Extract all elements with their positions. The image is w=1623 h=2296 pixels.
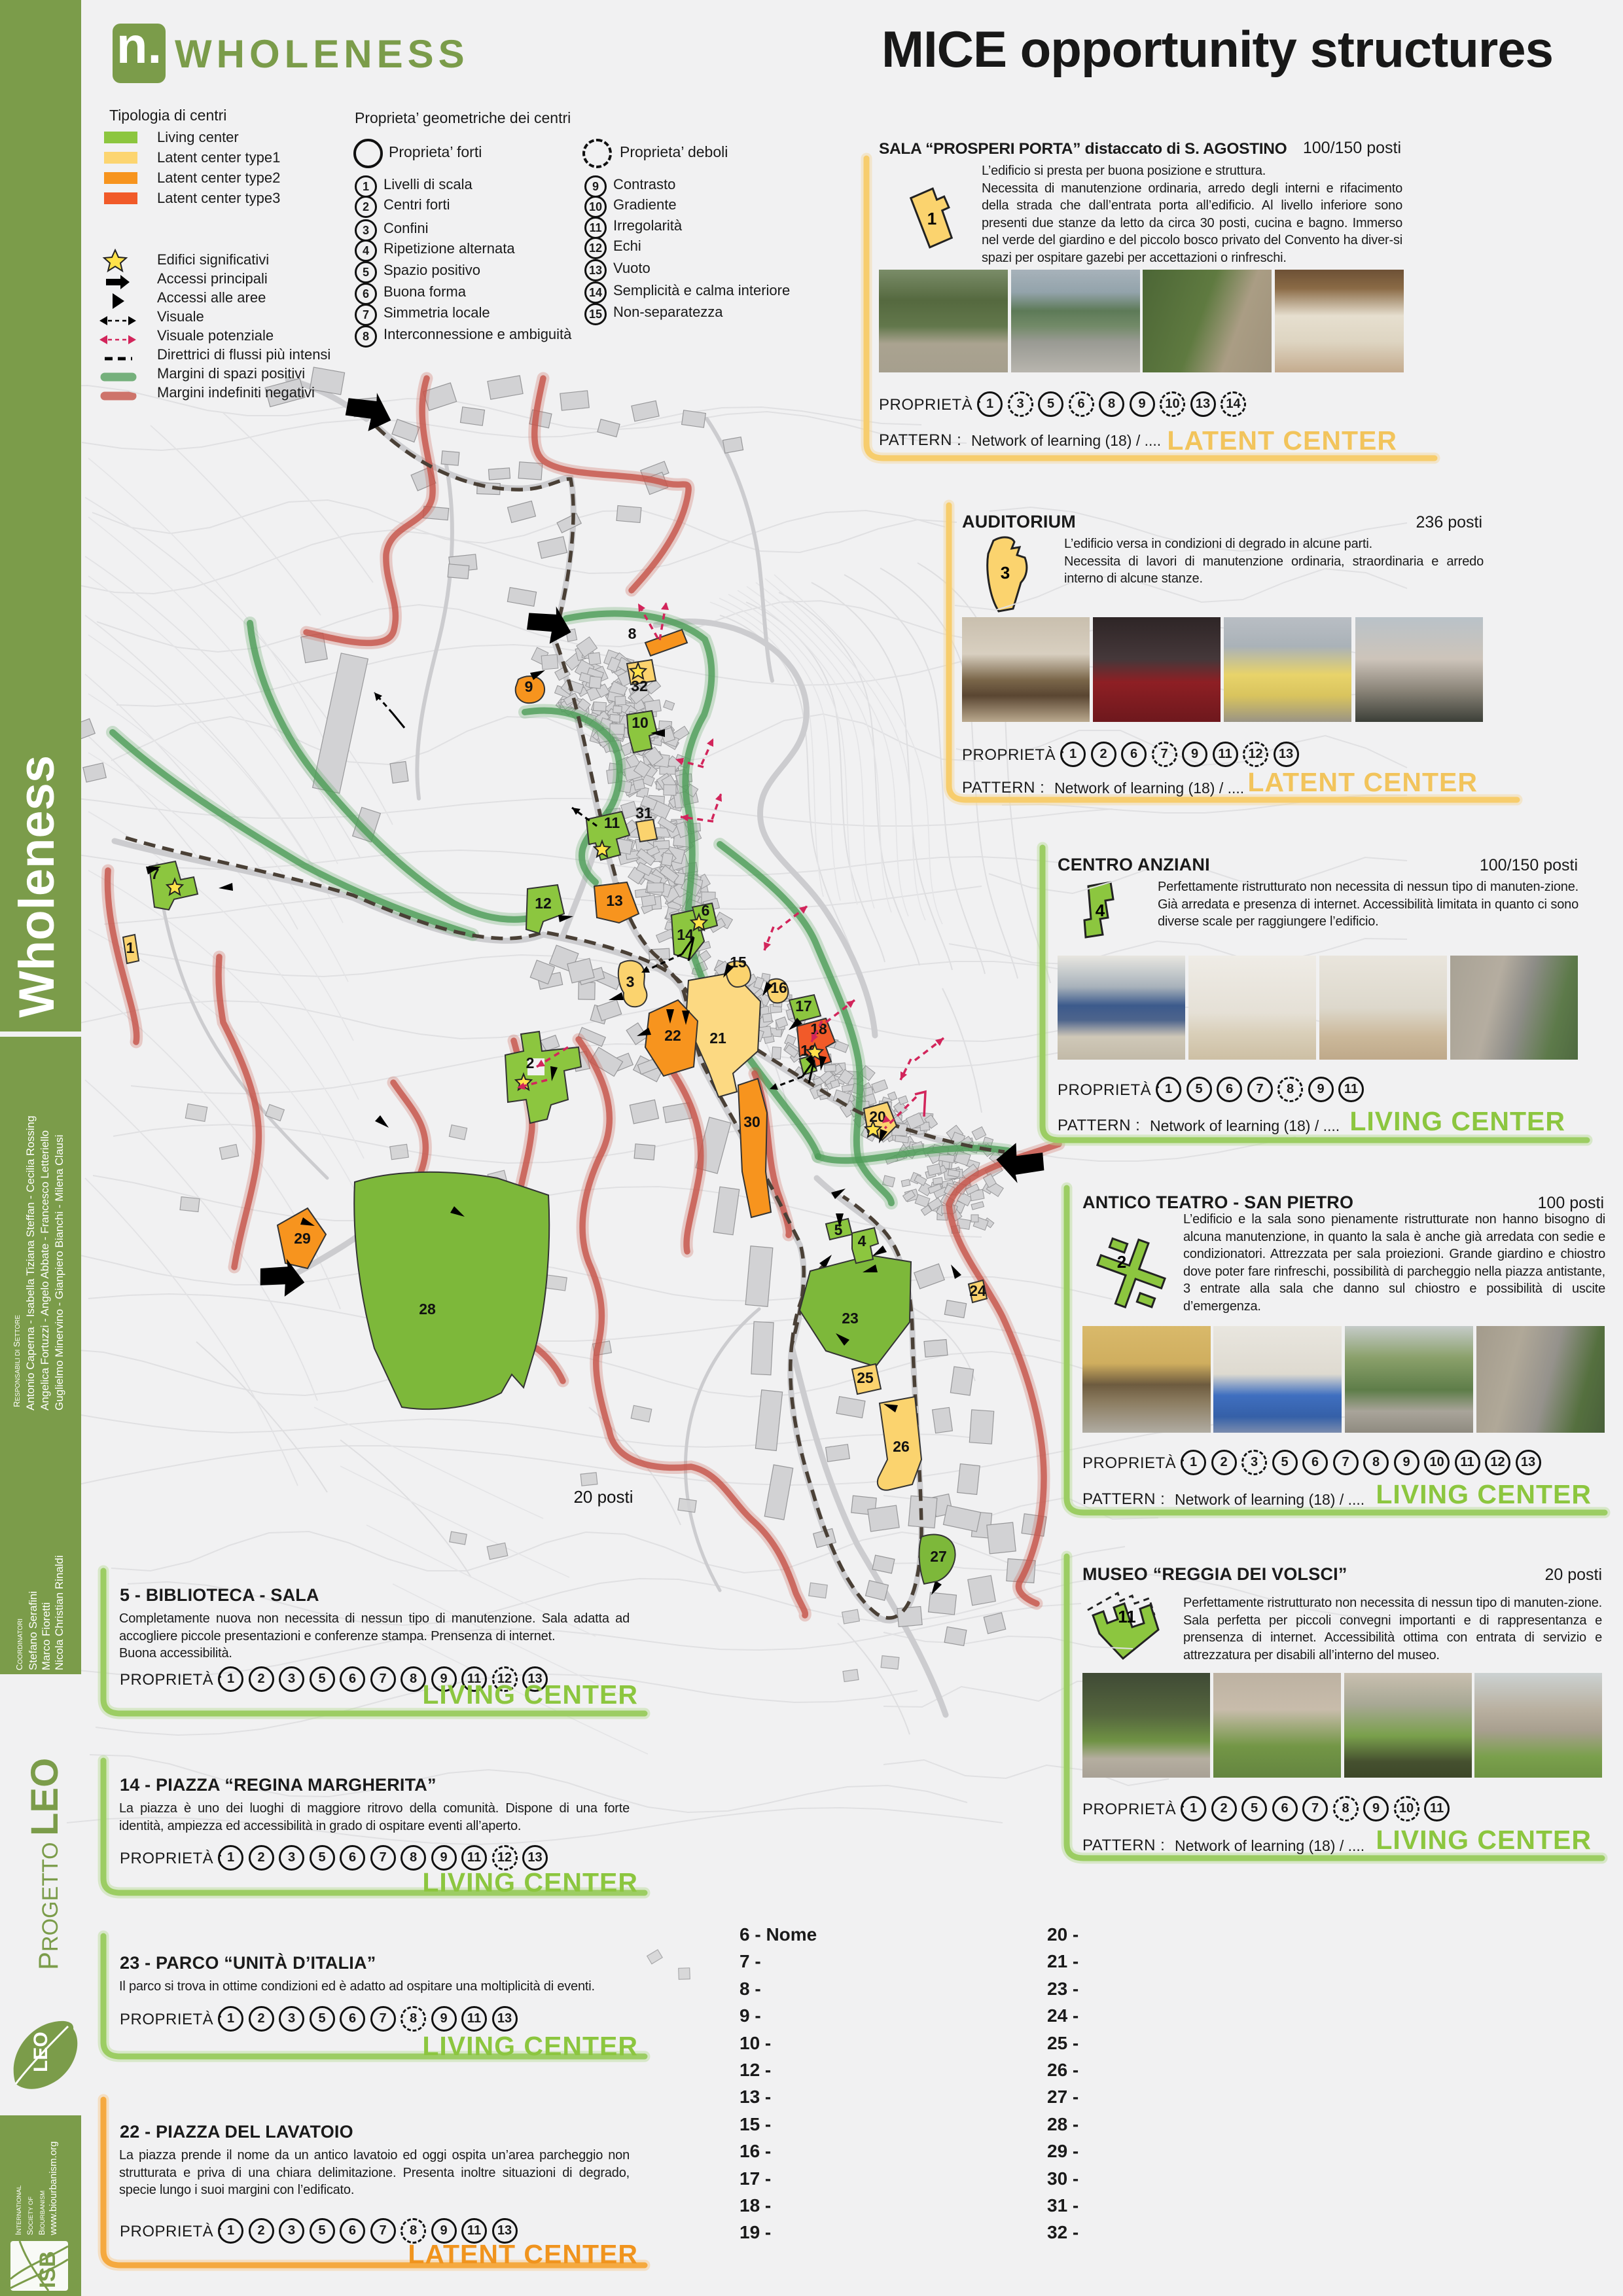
svg-text:Guglielmo Minervino - Gianpier: Guglielmo Minervino - Gianpiero Bianchi … bbox=[53, 1135, 65, 1410]
svg-text:Stefano Serafini: Stefano Serafini bbox=[27, 1591, 39, 1670]
svg-text:LEO: LEO bbox=[30, 2032, 52, 2072]
svg-text:INTERNATIONAL: INTERNATIONAL bbox=[14, 2185, 23, 2235]
svg-text:Nicola Christian Rinaldi: Nicola Christian Rinaldi bbox=[53, 1555, 65, 1670]
svg-text:PROGETTO LEO: PROGETTO LEO bbox=[24, 1758, 66, 1970]
svg-text:SOCIETY OF: SOCIETY OF bbox=[26, 2197, 35, 2235]
svg-text:ISB: ISB bbox=[35, 2251, 60, 2288]
svg-text:www.biourbanism.org: www.biourbanism.org bbox=[48, 2142, 59, 2236]
svg-text:Wholeness: Wholeness bbox=[9, 755, 65, 1018]
svg-text:Marco Fioretti: Marco Fioretti bbox=[40, 1602, 52, 1670]
svg-text:Antonio Caperna - Isabella Tiz: Antonio Caperna - Isabella Tiziana Steff… bbox=[24, 1116, 37, 1410]
svg-text:BIOURBANISM: BIOURBANISM bbox=[37, 2191, 46, 2235]
svg-text:Angelica Fortuzzi - Angelo Abb: Angelica Fortuzzi - Angelo Abbate - Fran… bbox=[39, 1130, 51, 1410]
